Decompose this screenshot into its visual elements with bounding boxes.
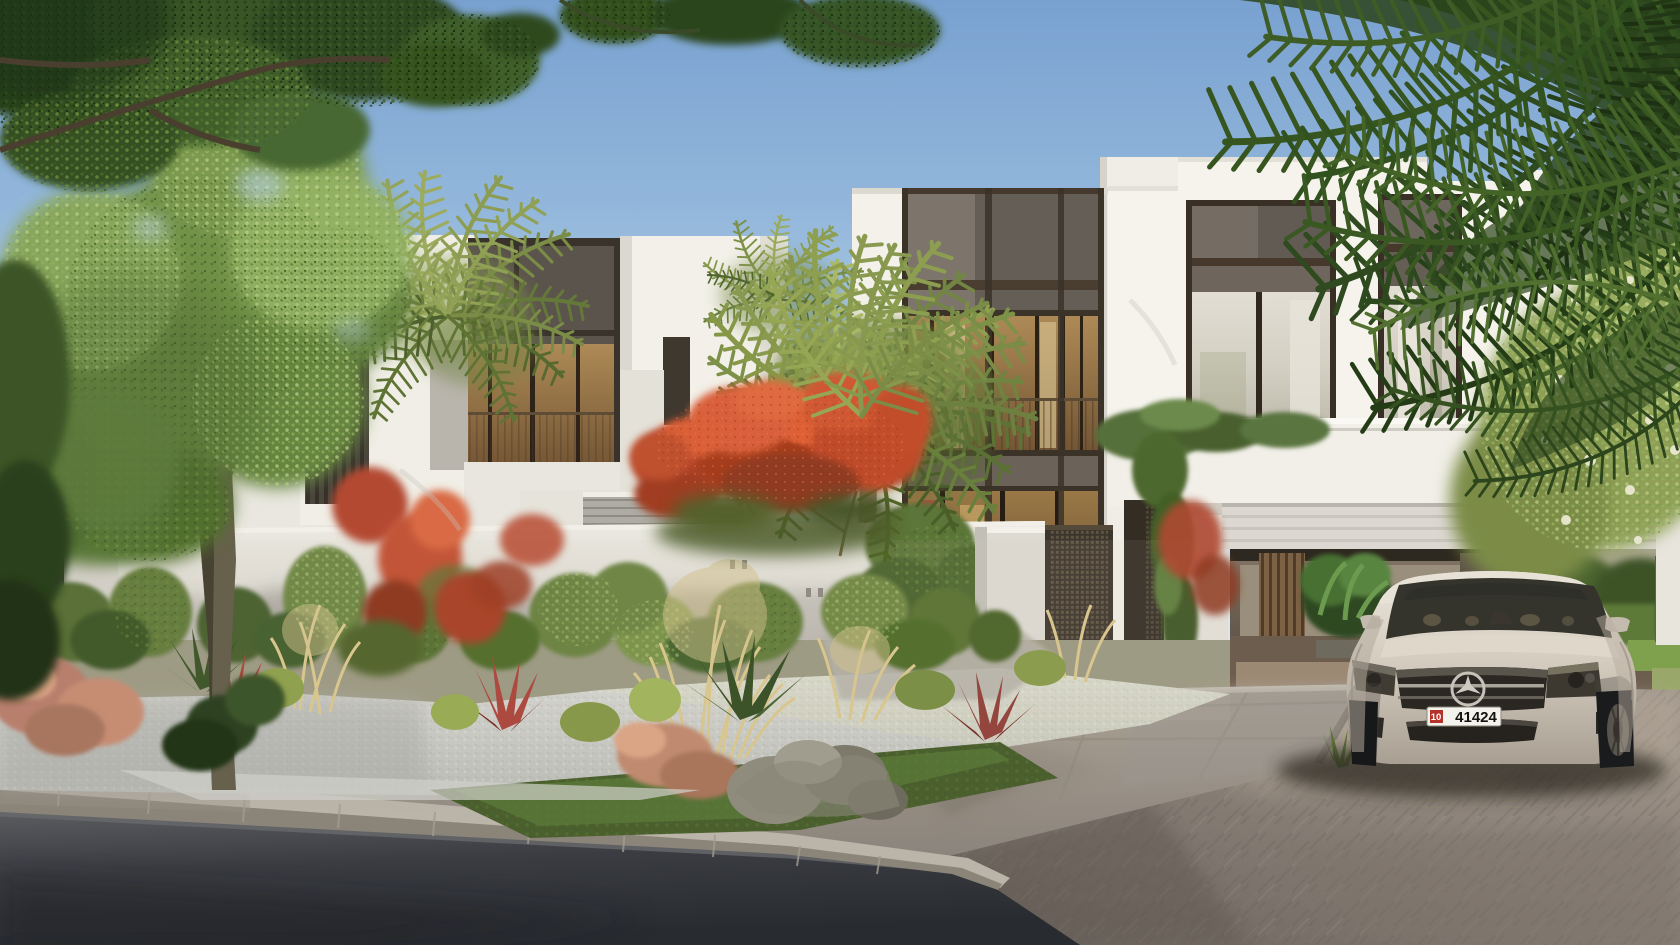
svg-text:41424: 41424 — [1455, 709, 1497, 726]
svg-text:10: 10 — [1431, 712, 1442, 723]
